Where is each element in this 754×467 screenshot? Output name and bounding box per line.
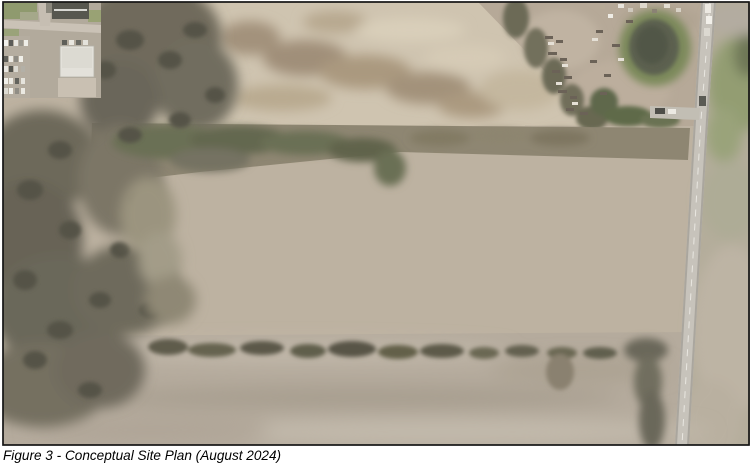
svg-text:Figure 3 - Conceptual Site Pla: Figure 3 - Conceptual Site Plan (August … [3, 448, 281, 463]
